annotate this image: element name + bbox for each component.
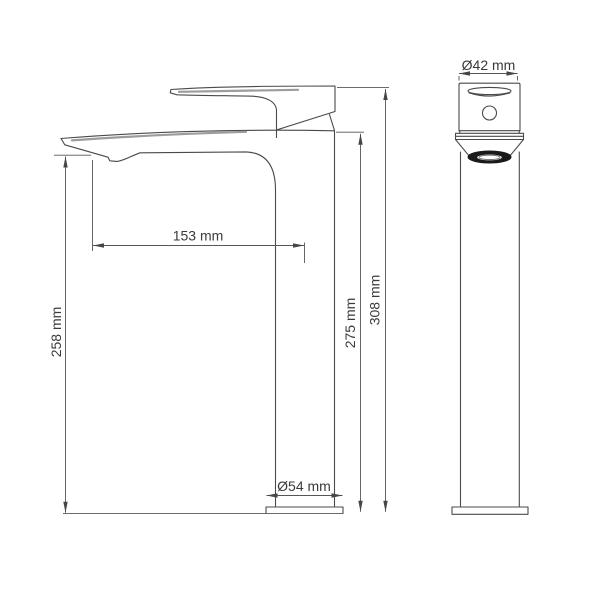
arrow-left [93, 243, 104, 247]
side-base-plate [266, 507, 343, 513]
dimension-label-153: 153 mm [173, 228, 224, 244]
dimension-label-54: Ø54 mm [277, 478, 331, 494]
handle-accent-line [179, 90, 298, 92]
dimension-spout-top-height: 275 mm [336, 132, 364, 512]
arrow-down [383, 501, 387, 512]
arrow-down [63, 502, 67, 513]
front-body-edges [461, 152, 520, 507]
dimension-spout-reach: 153 mm [93, 160, 305, 263]
front-base-plate [452, 507, 528, 514]
extension-stubs [459, 76, 518, 81]
spout-underside [61, 139, 276, 508]
handle-pivot-circle [483, 106, 497, 120]
arrow-up [63, 157, 67, 168]
dimension-annotations: 153 mm 258 mm 275 mm [48, 57, 518, 513]
side-view [61, 86, 343, 513]
arrow-left [267, 493, 278, 497]
handle-bevel-line [330, 115, 335, 131]
dimension-label-308: 308 mm [367, 275, 383, 326]
faucet-dimension-drawing: 153 mm 258 mm 275 mm [0, 0, 600, 600]
arrow-up [358, 134, 362, 145]
arrow-up [383, 89, 387, 100]
dimension-base-diameter: Ø54 mm [267, 478, 343, 498]
arrow-right [293, 243, 304, 247]
arrow-down [358, 501, 362, 512]
dimension-label-275: 275 mm [342, 298, 358, 349]
arrow-right [332, 493, 343, 497]
technical-drawing-page: 153 mm 258 mm 275 mm [0, 0, 600, 600]
dimension-spout-outlet-height: 258 mm [48, 155, 91, 513]
top-cap-ellipse [468, 87, 511, 94]
dimension-label-258: 258 mm [48, 307, 64, 358]
dimension-body-diameter: Ø42 mm [459, 57, 518, 81]
front-view [452, 83, 528, 514]
dimension-label-42: Ø42 mm [462, 57, 516, 73]
